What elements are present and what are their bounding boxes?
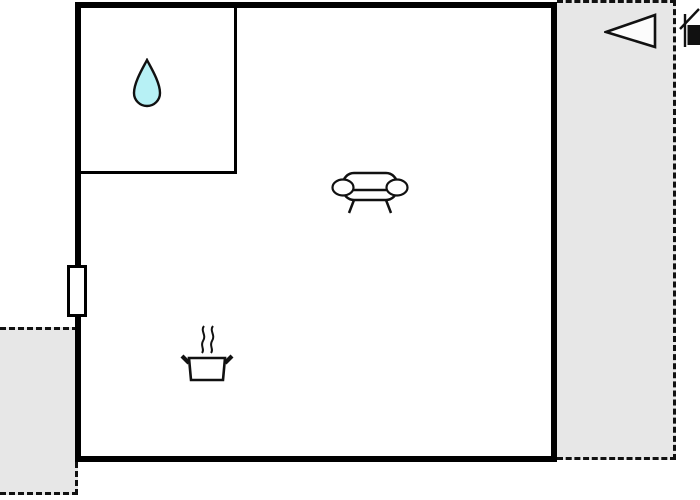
floorplan-canvas [0,0,700,500]
window-marker [67,265,87,317]
house-icon [679,5,700,49]
water-drop-shape [134,60,160,106]
steam-line [211,326,213,353]
terrace-right-area [557,0,676,460]
direction-triangle-icon [604,13,658,49]
cooking-pot-icon [180,322,234,384]
terrace-bottom-left-area [0,327,78,495]
water-drop-icon [130,58,164,110]
sofa-icon [331,170,409,216]
steam-line [202,326,204,353]
